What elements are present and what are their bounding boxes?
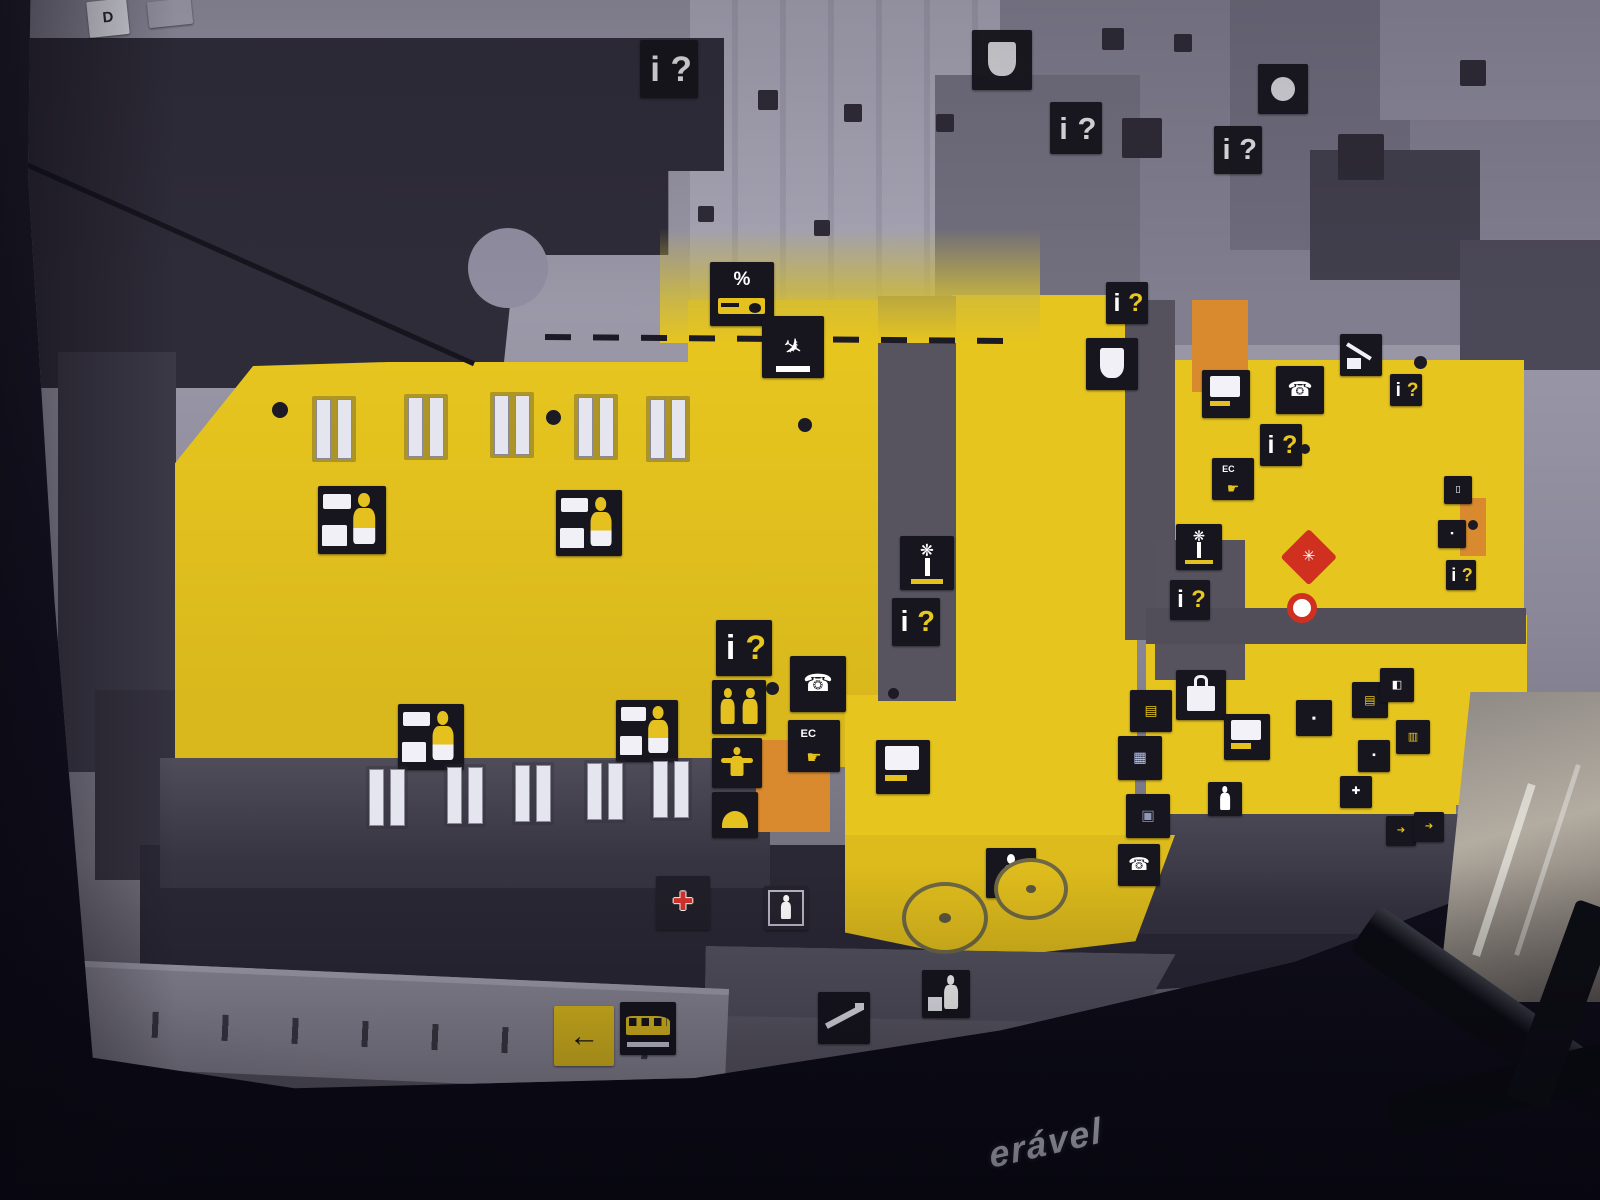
baggage-trolley-icon-part — [1347, 358, 1361, 369]
shop-icon-part: ▤ — [1130, 690, 1172, 732]
flight-info-screen-icon-part — [1210, 401, 1230, 407]
nursery-icon — [712, 738, 762, 788]
check-in-desks — [404, 394, 448, 460]
check-in-desks — [512, 762, 554, 825]
check-in-desks-part — [390, 769, 405, 827]
baggage-trolley-icon — [1340, 334, 1382, 376]
porter-icon — [922, 970, 970, 1018]
info-icon-part: i — [718, 620, 743, 676]
check-in-desks — [366, 766, 408, 829]
shop-icon: ▦ — [1118, 736, 1162, 780]
shop-icon-part: ▪ — [1358, 740, 1390, 772]
restaurant-icon — [712, 792, 758, 838]
nursery-icon-part — [728, 747, 746, 779]
stairs-person-icon-part — [1218, 786, 1232, 812]
info-icon-part: ? — [1074, 102, 1100, 154]
info-icon-part: i — [1216, 126, 1237, 174]
airport-terminal-map-photo: { "scene": { "caption_fragment": "erável… — [0, 0, 1600, 1200]
travel-agency-palm-icon-part — [911, 579, 943, 584]
vent-mark — [1102, 28, 1124, 50]
info-icon-part: ? — [742, 620, 770, 676]
direction-arrow-icon-part: ➔ — [1414, 812, 1444, 842]
check-in-icon-part — [645, 706, 672, 757]
check-in-icon — [556, 490, 622, 556]
flight-info-screen-icon — [1202, 370, 1250, 418]
check-in-desks — [646, 396, 690, 462]
shop-icon-part: ▦ — [1118, 736, 1162, 780]
vent-mark — [1460, 60, 1486, 86]
info-icon: i? — [640, 40, 698, 98]
check-in-desks-part — [408, 397, 424, 458]
vent-mark — [1338, 134, 1384, 180]
flight-info-screen-icon-part — [885, 746, 920, 770]
info-icon-part: i — [894, 598, 915, 646]
info-icon: i? — [716, 620, 772, 676]
luggage-icon-part: ▯ — [1444, 476, 1472, 504]
blank-tag — [147, 0, 193, 28]
shopping-bag-icon — [1176, 670, 1226, 720]
check-in-desks — [574, 394, 618, 460]
check-in-desks-part — [671, 399, 687, 460]
check-in-desks-part — [578, 397, 594, 458]
toilets-icon-part — [717, 688, 738, 728]
check-in-icon-part — [323, 494, 350, 509]
check-in-icon-part — [402, 742, 426, 762]
duty-free-percent-icon-part: % — [716, 265, 767, 296]
column-dot — [888, 688, 899, 699]
column-dot — [1468, 520, 1478, 530]
check-in-icon-part — [322, 525, 346, 545]
phone-icon-part: ☎ — [1118, 844, 1160, 886]
you-are-here-marker-part: ✳ — [1286, 534, 1332, 580]
vent-mark — [844, 104, 862, 122]
check-in-desks — [584, 760, 626, 823]
column-dot — [546, 410, 561, 425]
shop-icon: ▪ — [1438, 520, 1466, 548]
location-dot-marker-part — [1287, 593, 1317, 623]
check-in-icon-part — [349, 493, 379, 549]
phone-icon: ☎ — [790, 656, 846, 712]
check-in-desks-part — [337, 399, 353, 460]
vent-mark — [698, 206, 714, 222]
check-in-desks-part — [653, 761, 668, 819]
check-in-desks-part — [536, 765, 551, 823]
check-in-desks-part — [429, 397, 445, 458]
info-icon-part: i — [1391, 374, 1405, 406]
bus-icon-part — [627, 1042, 670, 1046]
info-icon: i? — [1106, 282, 1148, 324]
column-dot — [272, 402, 288, 418]
vent-mark — [758, 90, 778, 110]
atm-icon: EC☛ — [1212, 458, 1254, 500]
check-in-icon — [616, 700, 678, 762]
check-in-icon-part — [428, 711, 457, 765]
info-icon-part: ? — [1405, 374, 1421, 406]
escalator-icon-part — [855, 1003, 863, 1009]
info-icon: i? — [1050, 102, 1102, 154]
check-in-icon-part — [560, 528, 584, 548]
shop-icon: ▤ — [1130, 690, 1172, 732]
info-icon: i? — [1390, 374, 1422, 406]
info-icon: i? — [1446, 560, 1476, 590]
cafe-cup-icon — [972, 30, 1032, 90]
phone-icon-part: ☎ — [1276, 366, 1324, 414]
flight-info-screen-icon-part — [885, 775, 908, 781]
check-in-desks — [312, 396, 356, 462]
nursery-icon-part — [721, 758, 753, 763]
you-are-here-marker: ✳ — [1286, 534, 1332, 580]
check-in-desks — [650, 758, 692, 821]
shop-icon: ◧ — [1380, 668, 1414, 702]
check-in-desks-part — [515, 765, 530, 823]
toilets-icon-part — [740, 688, 761, 728]
exit-arrow-sign-part: ← — [554, 1006, 614, 1066]
exit-arrow-sign: ← — [554, 1006, 614, 1066]
shop-icon-part: ▪ — [1438, 520, 1466, 548]
round-counter — [902, 882, 988, 954]
pharmacy-cross-icon-part: ✚ — [1340, 776, 1372, 808]
check-in-icon — [318, 486, 386, 554]
info-icon-part: i — [1108, 282, 1127, 324]
vent-mark — [1174, 34, 1192, 52]
direction-arrow-icon: ➔ — [1414, 812, 1444, 842]
info-icon: i? — [892, 598, 940, 646]
check-in-icon-part — [403, 712, 429, 727]
check-in-desks-part — [608, 763, 623, 821]
cafe-cup-icon-part — [988, 42, 1016, 76]
porter-icon-part — [928, 997, 942, 1011]
first-aid-icon-part: ✚ — [656, 876, 710, 930]
pharmacy-cross-icon: ✚ — [1340, 776, 1372, 808]
check-in-icon — [398, 704, 464, 770]
restaurant-icon-part — [722, 811, 748, 828]
direction-arrow-icon-part: ➔ — [1386, 816, 1416, 846]
check-in-desks-part — [650, 399, 666, 460]
check-in-icon-part — [620, 736, 642, 755]
vent-mark — [814, 220, 830, 236]
circle-icon — [1258, 64, 1308, 114]
info-icon-part: i — [1052, 102, 1075, 154]
baggage-trolley-icon-part — [1346, 342, 1372, 360]
shop-icon-part: ◧ — [1380, 668, 1414, 702]
info-icon-part: ? — [1188, 580, 1208, 620]
travel-agency-palm-icon-part — [1197, 542, 1201, 558]
atm-icon-part: ☛ — [792, 746, 836, 771]
column-dot — [1414, 356, 1427, 369]
atm-icon-part: ☛ — [1215, 479, 1250, 499]
info-icon: i? — [1214, 126, 1262, 174]
gate-tag: D — [86, 0, 130, 38]
arrivals-plane-icon-part — [776, 366, 811, 372]
luggage-icon: ▯ — [1444, 476, 1472, 504]
flight-info-screen-icon-part — [1231, 743, 1250, 749]
round-counter — [994, 858, 1068, 920]
check-in-desks-part — [515, 395, 531, 456]
check-in-icon-part — [621, 707, 646, 721]
atm-icon: EC☛ — [788, 720, 840, 772]
gate-tag-part: D — [86, 0, 130, 38]
travel-agency-palm-icon-part — [1185, 560, 1213, 564]
atm-icon-part: EC — [792, 724, 824, 745]
info-icon: i? — [1260, 424, 1302, 466]
check-in-icon-part — [561, 498, 587, 513]
column-dot — [766, 682, 779, 695]
flight-info-screen-icon — [876, 740, 930, 794]
elevator-icon-part — [779, 895, 793, 921]
circle-icon-part — [1271, 77, 1295, 101]
info-icon-part: ? — [667, 40, 696, 98]
check-in-desks-part — [599, 397, 615, 458]
info-icon-part: ? — [1279, 424, 1300, 466]
check-in-desks-part — [494, 395, 510, 456]
shop-icon-part: ▥ — [1396, 720, 1430, 754]
info-icon-part: ? — [1460, 560, 1475, 590]
shop-icon: ▪ — [1358, 740, 1390, 772]
info-icon-part: i — [642, 40, 668, 98]
toilets-icon — [712, 680, 766, 734]
phone-icon: ☎ — [1118, 844, 1160, 886]
shop-icon: ▥ — [1396, 720, 1430, 754]
shop-icon: ▣ — [1126, 794, 1170, 838]
flight-info-screen-icon — [1224, 714, 1270, 760]
shopping-bag-icon-part — [1187, 686, 1215, 711]
bus-icon-part — [626, 1016, 671, 1035]
vent-mark — [1122, 118, 1162, 158]
phone-icon: ☎ — [1276, 366, 1324, 414]
location-dot-marker — [1282, 588, 1322, 628]
info-icon-part: ? — [1236, 126, 1260, 174]
info-icon: i? — [1170, 580, 1210, 620]
vent-mark — [936, 114, 954, 132]
arrivals-plane-icon: ✈ — [762, 316, 824, 378]
shop-icon: ▪ — [1296, 700, 1332, 736]
check-in-desks — [490, 392, 534, 458]
info-icon-part: i — [1262, 424, 1281, 466]
flight-info-screen-icon-part — [1210, 376, 1241, 397]
column-dot — [798, 418, 812, 432]
escalator-icon — [818, 992, 870, 1044]
check-in-desks-part — [369, 769, 384, 827]
info-icon-part: ? — [1125, 282, 1146, 324]
first-aid-icon: ✚ — [656, 876, 710, 930]
check-in-desks-part — [468, 767, 483, 825]
phone-icon-part: ☎ — [790, 656, 846, 712]
check-in-desks-part — [674, 761, 689, 819]
check-in-desks-part — [587, 763, 602, 821]
shop-icon-part: ▣ — [1126, 794, 1170, 838]
cafe-cup-icon-part — [1100, 348, 1124, 377]
shop-icon-part: ▪ — [1296, 700, 1332, 736]
atm-icon-part: EC — [1215, 461, 1241, 478]
elevator-icon — [764, 886, 808, 930]
check-in-desks-part — [447, 767, 462, 825]
info-icon-part: i — [1172, 580, 1190, 620]
column-dot — [1300, 444, 1310, 454]
round-counter-part — [1026, 885, 1037, 894]
direction-arrow-icon: ➔ — [1386, 816, 1416, 846]
porter-icon-part — [941, 975, 960, 1012]
bus-icon — [620, 1002, 676, 1055]
travel-agency-palm-icon-part — [925, 558, 930, 576]
check-in-icon-part — [586, 497, 615, 551]
check-in-desks-part — [316, 399, 332, 460]
info-icon-part: ? — [914, 598, 938, 646]
round-counter-part — [939, 913, 951, 923]
stairs-person-icon — [1208, 782, 1242, 816]
travel-agency-palm-icon: ❋ — [900, 536, 954, 590]
flight-info-screen-icon-part — [1231, 720, 1260, 740]
icon-layer: Di?i?i?%✈i?☎EC☛❋i?i?☎i?EC☛i?❋i?✳▤▦▪▤◧▥▪✚… — [0, 0, 1600, 1200]
travel-agency-palm-icon: ❋ — [1176, 524, 1222, 570]
arrivals-plane-icon-part: ✈ — [750, 304, 835, 389]
duty-free-percent-icon-part — [718, 298, 765, 315]
cafe-cup-icon — [1086, 338, 1138, 390]
info-icon-part: i — [1447, 560, 1460, 590]
check-in-desks — [444, 764, 486, 827]
